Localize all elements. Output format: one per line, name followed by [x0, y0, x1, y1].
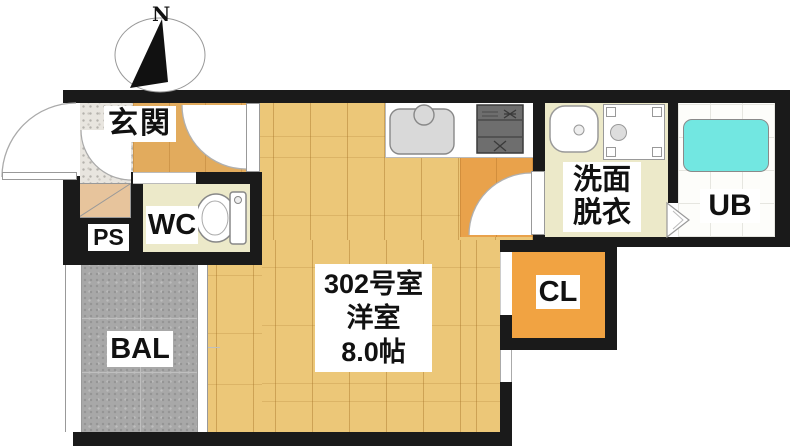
corner-mark — [606, 147, 616, 157]
wc-door-opening — [133, 172, 196, 184]
ps-label: PS — [88, 224, 129, 251]
hallway-door-panel — [246, 103, 260, 172]
wall-closet-left-stub — [500, 315, 512, 340]
closet-opening — [500, 252, 512, 315]
washroom-label-line1: 洗面 — [573, 166, 631, 195]
room-number: 302号室 — [324, 271, 423, 298]
washbasin-icon — [548, 104, 602, 156]
room-size: 8.0帖 — [341, 339, 406, 366]
main-room-floor — [208, 265, 262, 432]
wall-kitchen-washroom — [533, 90, 545, 172]
entrance-label: 玄関 — [104, 106, 176, 142]
drain-circle — [610, 124, 627, 141]
corner-mark — [652, 147, 662, 157]
hallway-door-swing — [180, 103, 248, 171]
kitchen-sink — [388, 104, 458, 156]
closet-label: CL — [536, 275, 580, 309]
floor-plan: N 玄関 WC PS BAL CL UB 302号室 洋室 8.0帖 洗面 脱衣 — [0, 0, 800, 446]
washroom-door-swing — [467, 171, 533, 237]
wall-wc-bottom — [131, 252, 262, 265]
folding-door-icon — [664, 200, 694, 240]
compass-n-label: N — [152, 2, 170, 26]
unit-bath-label: UB — [700, 189, 760, 223]
wall-washroom-ub — [668, 90, 678, 203]
shoe-cabinet — [78, 183, 131, 218]
bathtub — [683, 119, 769, 172]
washroom-label: 洗面 脱衣 — [563, 162, 641, 232]
wall-closet-bottom — [500, 338, 617, 350]
front-door-panel — [2, 172, 77, 180]
corner-mark — [606, 107, 616, 117]
compass: N — [112, 2, 208, 96]
washing-machine-space — [603, 104, 665, 160]
wall-bottom — [73, 432, 512, 446]
wall-closet-top — [500, 240, 617, 252]
main-room-label: 302号室 洋室 8.0帖 — [315, 264, 432, 372]
room-type: 洋室 — [347, 305, 401, 332]
balcony-window — [197, 265, 208, 432]
right-wall-window — [500, 350, 512, 382]
stove-icon — [476, 104, 524, 154]
toilet-icon — [194, 186, 252, 250]
balcony-window-handle — [208, 347, 220, 348]
balcony-label: BAL — [107, 331, 173, 367]
corner-mark — [652, 107, 662, 117]
wc-label: WC — [146, 206, 198, 244]
washroom-door-panel — [531, 171, 545, 235]
wall-wc-top — [196, 172, 250, 184]
balcony-railing — [65, 265, 82, 432]
cabinet-diagonal-line — [79, 184, 130, 217]
wall-closet-right — [605, 240, 617, 350]
wall-right — [775, 90, 790, 247]
washroom-label-line2: 脱衣 — [573, 199, 631, 228]
front-door-swing-arc — [0, 98, 80, 182]
